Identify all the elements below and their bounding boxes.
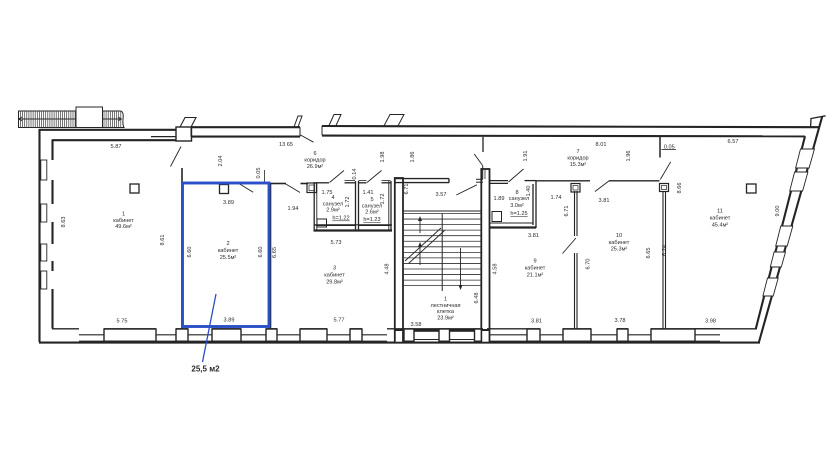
svg-text:23.9м²: 23.9м² xyxy=(437,315,454,321)
svg-text:1.72: 1.72 xyxy=(380,194,386,205)
svg-text:6.71: 6.71 xyxy=(564,206,570,217)
svg-text:0.14: 0.14 xyxy=(352,169,358,180)
svg-text:1.96: 1.96 xyxy=(626,151,632,162)
svg-text:клетка: клетка xyxy=(437,309,455,315)
svg-text:1: 1 xyxy=(444,297,447,303)
svg-text:3.57: 3.57 xyxy=(436,192,447,198)
svg-text:2.04: 2.04 xyxy=(218,156,224,167)
svg-text:8.01: 8.01 xyxy=(596,142,607,148)
svg-text:45.4м²: 45.4м² xyxy=(712,223,729,229)
svg-text:3.78: 3.78 xyxy=(615,318,626,324)
svg-text:26.9м²: 26.9м² xyxy=(307,164,324,170)
svg-text:6.71: 6.71 xyxy=(404,184,410,195)
svg-text:6.70: 6.70 xyxy=(586,259,592,270)
svg-text:5.73: 5.73 xyxy=(331,240,342,246)
svg-text:кабинет: кабинет xyxy=(218,248,239,254)
svg-text:1.98: 1.98 xyxy=(380,152,386,163)
svg-text:1.74: 1.74 xyxy=(551,195,562,201)
svg-text:6.65: 6.65 xyxy=(272,247,278,258)
svg-text:кабинет: кабинет xyxy=(525,266,546,272)
svg-text:6.57: 6.57 xyxy=(728,139,739,145)
svg-text:10: 10 xyxy=(616,233,622,239)
svg-text:25,5 м2: 25,5 м2 xyxy=(191,365,220,374)
svg-text:h=1.25: h=1.25 xyxy=(510,211,527,217)
svg-text:2: 2 xyxy=(226,241,229,247)
svg-text:3.98: 3.98 xyxy=(705,319,716,325)
svg-text:13 65: 13 65 xyxy=(279,142,293,148)
svg-text:5 75: 5 75 xyxy=(117,319,128,325)
svg-text:25.3м²: 25.3м² xyxy=(611,247,628,253)
svg-text:3.58: 3.58 xyxy=(411,322,422,328)
svg-text:3.81: 3.81 xyxy=(528,233,539,239)
svg-text:6.24: 6.24 xyxy=(662,245,668,256)
svg-text:1.72: 1.72 xyxy=(345,197,351,208)
svg-text:1.91: 1.91 xyxy=(523,151,529,162)
svg-text:5.87: 5.87 xyxy=(111,144,122,150)
svg-text:1: 1 xyxy=(122,212,125,218)
svg-text:3.89: 3.89 xyxy=(224,318,235,324)
svg-text:5.77: 5.77 xyxy=(334,318,345,324)
svg-text:1.86: 1.86 xyxy=(410,152,416,163)
svg-text:8.63: 8.63 xyxy=(61,217,67,228)
svg-text:h=1.23: h=1.23 xyxy=(363,217,380,223)
svg-text:29.8м²: 29.8м² xyxy=(326,280,343,286)
svg-text:3.89: 3.89 xyxy=(223,200,234,206)
svg-text:7: 7 xyxy=(576,149,579,155)
svg-text:6.60: 6.60 xyxy=(258,247,264,258)
svg-text:4.48: 4.48 xyxy=(385,264,391,275)
svg-text:0.05: 0.05 xyxy=(664,145,675,151)
svg-text:кабинет: кабинет xyxy=(609,240,630,246)
svg-text:1.94: 1.94 xyxy=(288,206,299,212)
svg-text:кабинет: кабинет xyxy=(710,216,731,222)
svg-text:3.81: 3.81 xyxy=(531,319,542,325)
svg-text:9: 9 xyxy=(533,259,536,265)
svg-text:6.48: 6.48 xyxy=(474,293,480,304)
svg-text:коридор: коридор xyxy=(304,158,325,164)
svg-text:2.9м²: 2.9м² xyxy=(326,208,340,214)
svg-text:h=1.22: h=1.22 xyxy=(332,216,349,222)
svg-text:3.0м²: 3.0м² xyxy=(510,203,524,209)
svg-text:4.58: 4.58 xyxy=(493,264,499,275)
svg-text:25.5м²: 25.5м² xyxy=(220,255,237,261)
svg-text:2.6м²: 2.6м² xyxy=(365,210,379,216)
svg-text:3: 3 xyxy=(333,266,336,272)
svg-text:21.1м²: 21.1м² xyxy=(527,273,544,279)
svg-text:6: 6 xyxy=(313,151,316,157)
svg-text:6.60: 6.60 xyxy=(187,247,193,258)
svg-text:49.6м²: 49.6м² xyxy=(115,224,132,230)
svg-text:6.65: 6.65 xyxy=(646,248,652,259)
svg-text:9.00: 9.00 xyxy=(775,206,781,217)
svg-text:3.81: 3.81 xyxy=(599,198,610,204)
svg-text:8.61: 8.61 xyxy=(160,235,166,246)
svg-text:коридор: коридор xyxy=(567,156,588,162)
svg-text:1.40: 1.40 xyxy=(526,186,532,197)
svg-text:15.3м²: 15.3м² xyxy=(570,162,587,168)
svg-text:8.66: 8.66 xyxy=(677,183,683,194)
svg-text:5: 5 xyxy=(370,197,373,203)
svg-text:1.75: 1.75 xyxy=(322,190,333,196)
svg-text:11: 11 xyxy=(717,209,723,215)
svg-text:1.41: 1.41 xyxy=(363,190,374,196)
svg-text:0.05: 0.05 xyxy=(256,168,262,179)
svg-text:1.89: 1.89 xyxy=(494,196,505,202)
svg-text:кабинет: кабинет xyxy=(324,273,345,279)
